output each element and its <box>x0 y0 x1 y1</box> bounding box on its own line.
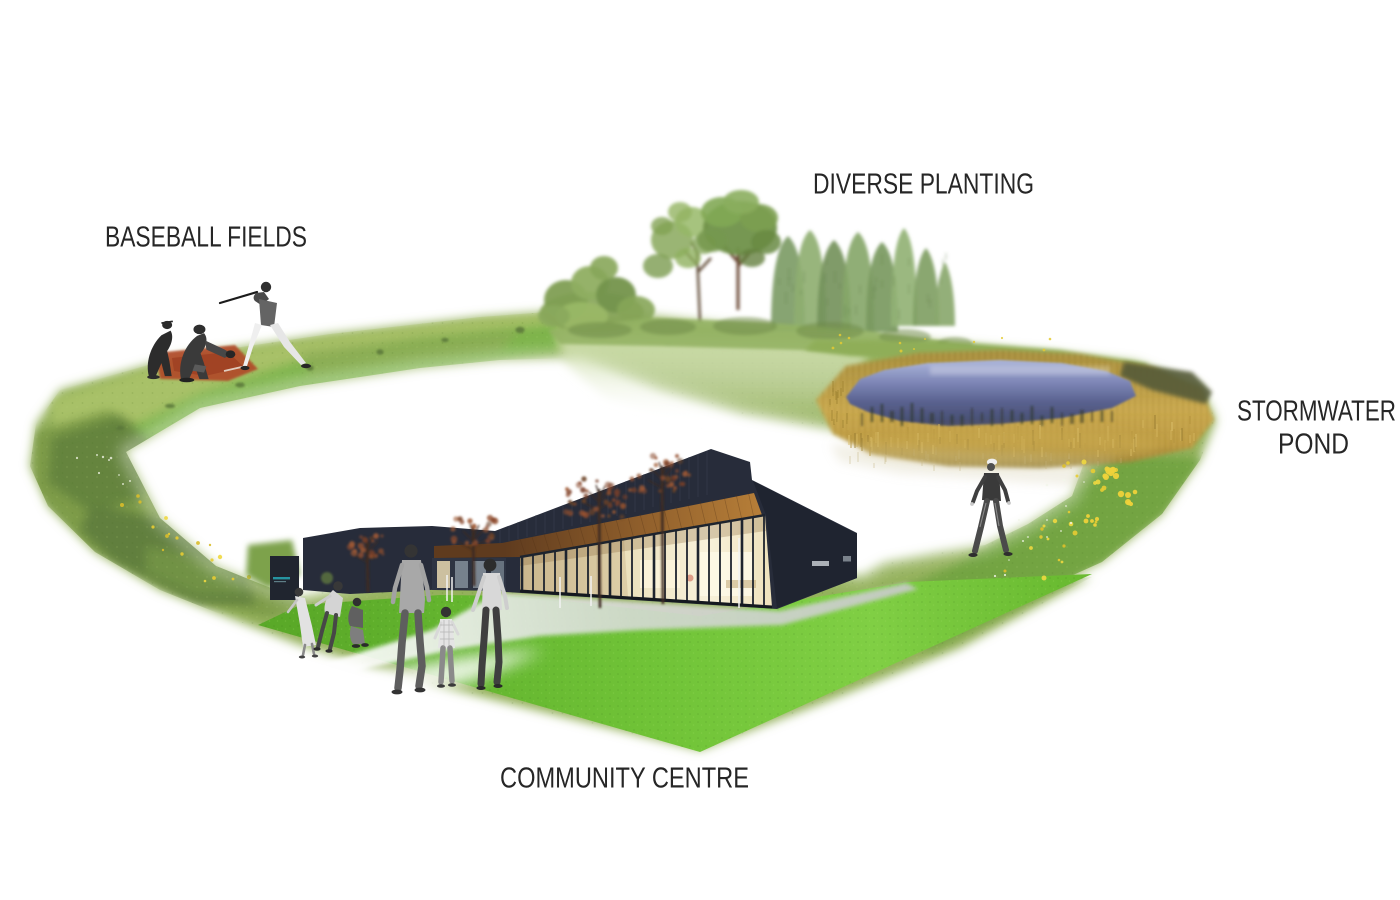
svg-text:POND: POND <box>1278 429 1349 461</box>
svg-text:BASEBALL FIELDS: BASEBALL FIELDS <box>105 222 307 254</box>
svg-text:COMMUNITY CENTRE: COMMUNITY CENTRE <box>500 763 749 795</box>
svg-text:STORMWATER: STORMWATER <box>1237 396 1396 428</box>
svg-text:DIVERSE PLANTING: DIVERSE PLANTING <box>813 169 1034 201</box>
